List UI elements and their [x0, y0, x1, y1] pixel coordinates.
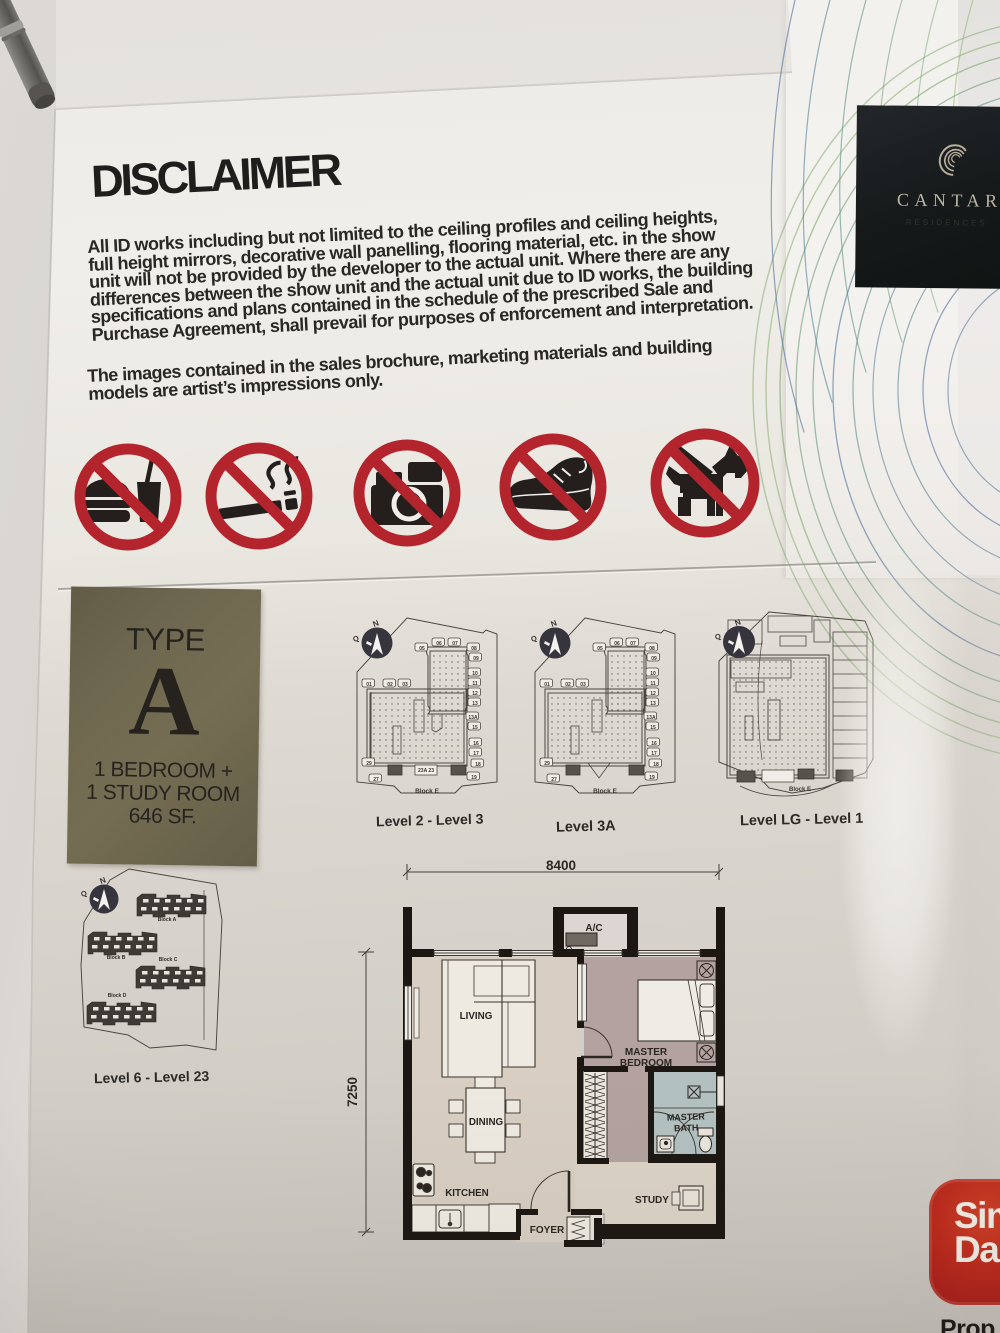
svg-text:KITCHEN: KITCHEN — [445, 1188, 489, 1199]
svg-text:FOYER: FOYER — [530, 1225, 565, 1236]
svg-text:STUDY: STUDY — [635, 1195, 669, 1206]
svg-text:8400: 8400 — [546, 858, 576, 873]
svg-text:7250: 7250 — [345, 1077, 360, 1107]
svg-text:MASTER: MASTER — [625, 1047, 668, 1058]
svg-text:BATH: BATH — [674, 1123, 699, 1134]
svg-text:A/C: A/C — [585, 923, 602, 934]
svg-text:MASTER: MASTER — [667, 1111, 706, 1122]
svg-text:LIVING: LIVING — [460, 1011, 493, 1022]
svg-text:DINING: DINING — [469, 1117, 504, 1128]
